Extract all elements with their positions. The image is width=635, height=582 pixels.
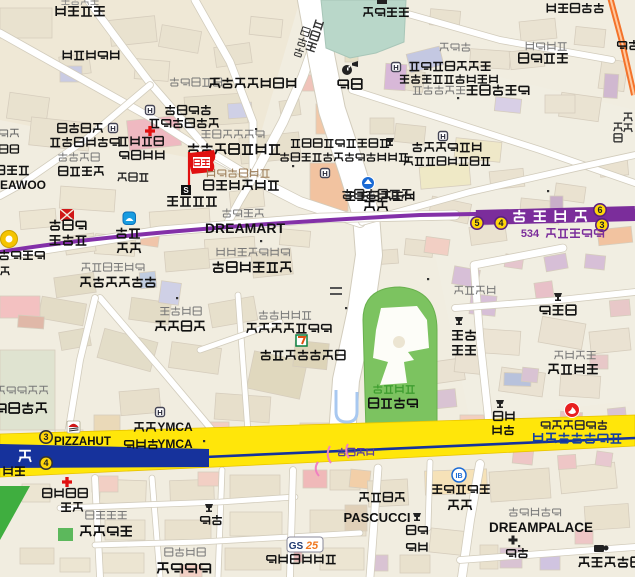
svg-text:534: 534 — [521, 228, 540, 240]
svg-text:YMCA: YMCA — [157, 420, 193, 434]
svg-text:H: H — [110, 124, 116, 133]
svg-text:5: 5 — [474, 218, 479, 228]
svg-text:H: H — [322, 169, 328, 178]
svg-text:H: H — [393, 63, 399, 72]
svg-text:H: H — [147, 106, 153, 115]
svg-text:4: 4 — [43, 458, 48, 468]
svg-text:DREAMPALACE: DREAMPALACE — [489, 520, 593, 535]
svg-text:PIZZAHUT: PIZZAHUT — [54, 436, 111, 448]
svg-text:S: S — [183, 186, 189, 195]
svg-text:PASCUCCI: PASCUCCI — [344, 510, 411, 525]
svg-text:DREAMART: DREAMART — [205, 220, 286, 236]
svg-text:3: 3 — [43, 432, 48, 442]
svg-text:3: 3 — [599, 220, 604, 230]
svg-text:4: 4 — [498, 218, 503, 228]
svg-text:GS: GS — [289, 541, 304, 552]
svg-text:H: H — [440, 132, 446, 141]
svg-text:IB: IB — [456, 473, 463, 480]
svg-text:H: H — [157, 408, 163, 417]
svg-text:6: 6 — [597, 205, 602, 215]
svg-text:25: 25 — [305, 540, 319, 552]
svg-text:EAWOO: EAWOO — [0, 178, 46, 192]
svg-text:YMCA: YMCA — [157, 437, 193, 451]
